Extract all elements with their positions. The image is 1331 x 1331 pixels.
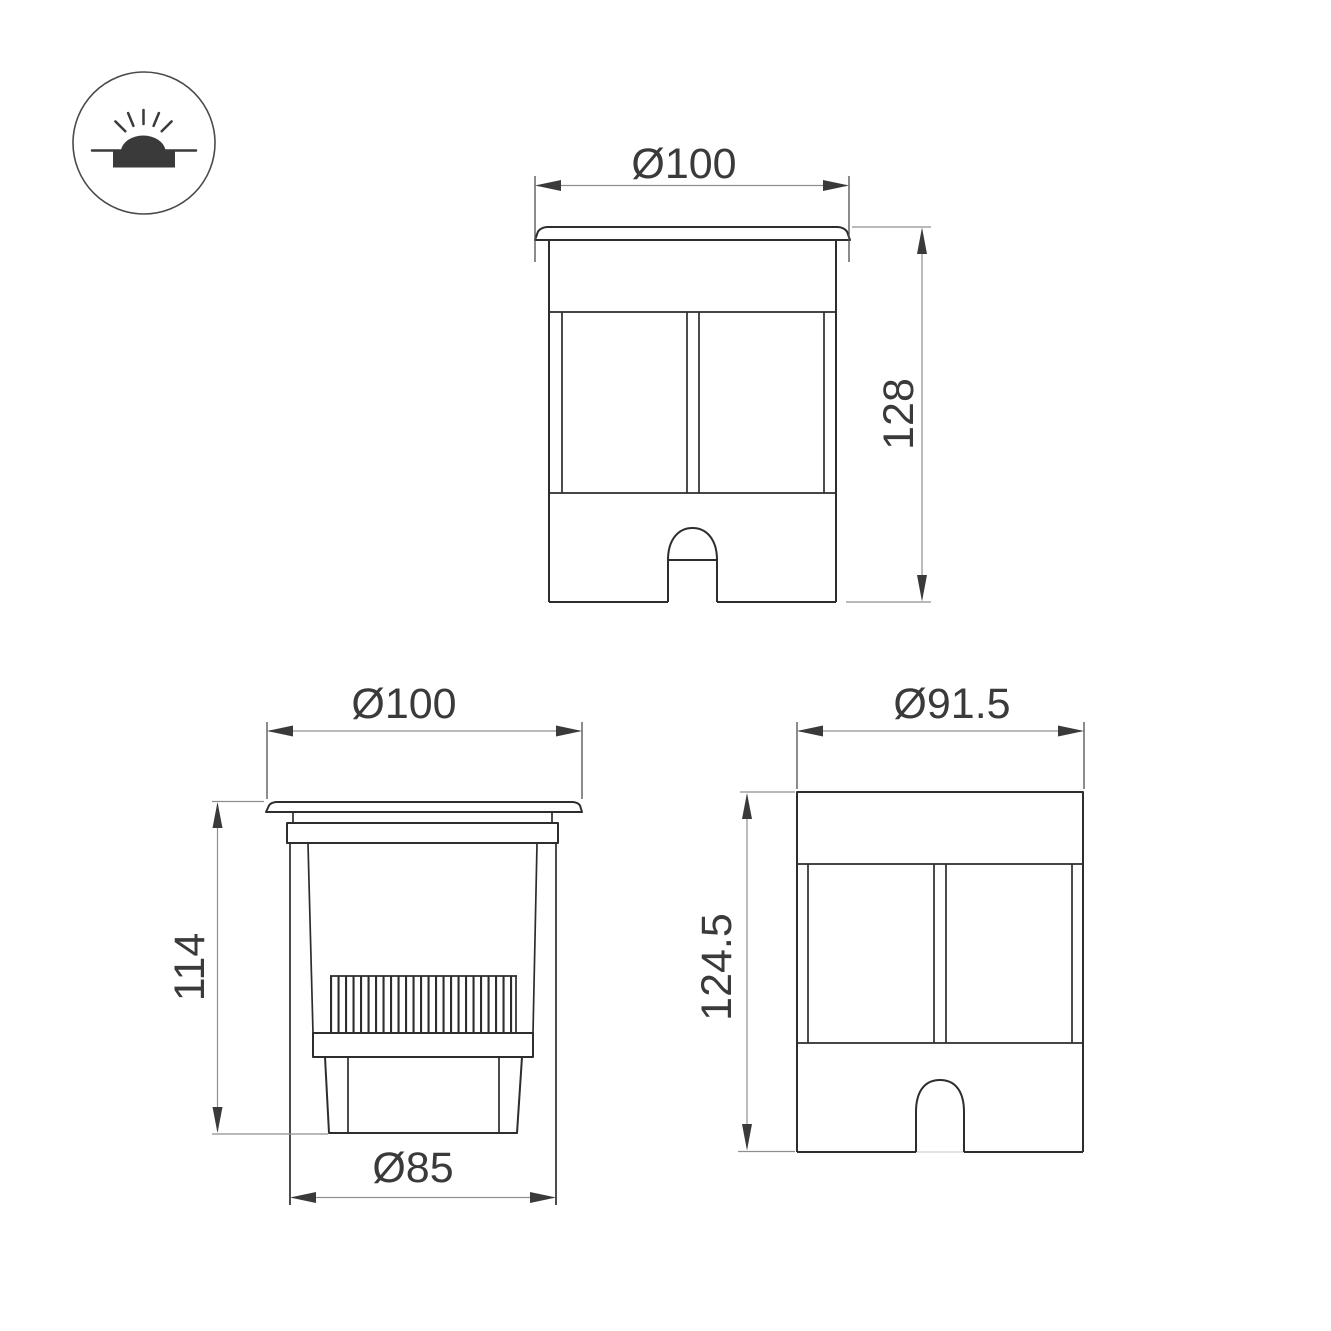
section-base-dimension: Ø85 (290, 1144, 556, 1203)
side-width-dimension: Ø91.5 (797, 680, 1084, 789)
front-width-arrow-right (823, 180, 849, 191)
section-width-dimension: Ø100 (267, 680, 582, 799)
side-width-extension-lines (797, 722, 1084, 789)
section-base-arrow-left (290, 1192, 316, 1203)
front-width-label: Ø100 (631, 140, 736, 188)
side-width-label: Ø91.5 (893, 680, 1010, 728)
section-width-arrow-right (556, 726, 582, 737)
side-cable-notch (916, 1080, 964, 1152)
section-width-arrow-left (267, 726, 293, 737)
front-width-dimension: Ø100 (535, 140, 849, 262)
side-height-label: 124.5 (693, 913, 741, 1021)
front-height-arrow-top (917, 228, 927, 255)
side-height-dimension: 124.5 (693, 792, 795, 1152)
front-cable-notch-arch (668, 528, 717, 560)
icon-light-dome (121, 136, 166, 150)
front-window-mullions (562, 312, 824, 493)
section-mounting-plate (313, 1033, 533, 1057)
side-width-arrow-right (1058, 726, 1084, 737)
front-view: Ø100 128 (535, 140, 931, 602)
section-width-extension-lines (267, 722, 582, 799)
side-height-arrow-bottom (742, 1124, 752, 1151)
section-height-arrow-top (213, 802, 223, 828)
recessed-light-icon (73, 72, 215, 214)
side-body-outline (797, 792, 1083, 1152)
side-height-arrow-top (742, 793, 752, 819)
section-heatsink (330, 976, 517, 1033)
front-body-walls (549, 240, 836, 602)
front-height-arrow-bottom (917, 575, 927, 602)
front-width-arrow-left (535, 180, 561, 191)
section-base-housing (325, 1057, 522, 1133)
section-base-arrow-right (530, 1192, 556, 1203)
front-height-label: 128 (875, 378, 923, 450)
front-height-dimension: 128 (846, 227, 931, 602)
side-section-dividers (797, 864, 1083, 1043)
drawing-canvas: Ø100 128 (0, 0, 1331, 1331)
section-height-label: 114 (166, 933, 214, 1002)
section-base-label: Ø85 (372, 1144, 453, 1192)
front-section-dividers (549, 312, 836, 493)
technical-drawing: Ø100 128 (0, 0, 1331, 1331)
front-width-extension-lines (535, 176, 849, 262)
front-flange (535, 227, 850, 240)
section-collar (293, 812, 552, 823)
section-base-inner-lines (348, 1057, 499, 1133)
side-window-mullions (808, 864, 1072, 1043)
front-cable-notch (668, 560, 717, 602)
icon-fixture-body (113, 151, 175, 168)
section-clamp-ring (287, 823, 558, 843)
side-view: Ø91.5 124.5 (693, 680, 1084, 1152)
section-view: Ø100 114 Ø85 (166, 680, 582, 1205)
section-height-dimension: 114 (166, 802, 328, 1135)
section-width-label: Ø100 (351, 680, 456, 728)
icon-light-rays (115, 110, 171, 131)
side-width-arrow-left (797, 726, 823, 737)
heatsink-fins (330, 976, 517, 1033)
section-height-arrow-bottom (213, 1107, 223, 1133)
section-flange (266, 802, 582, 812)
